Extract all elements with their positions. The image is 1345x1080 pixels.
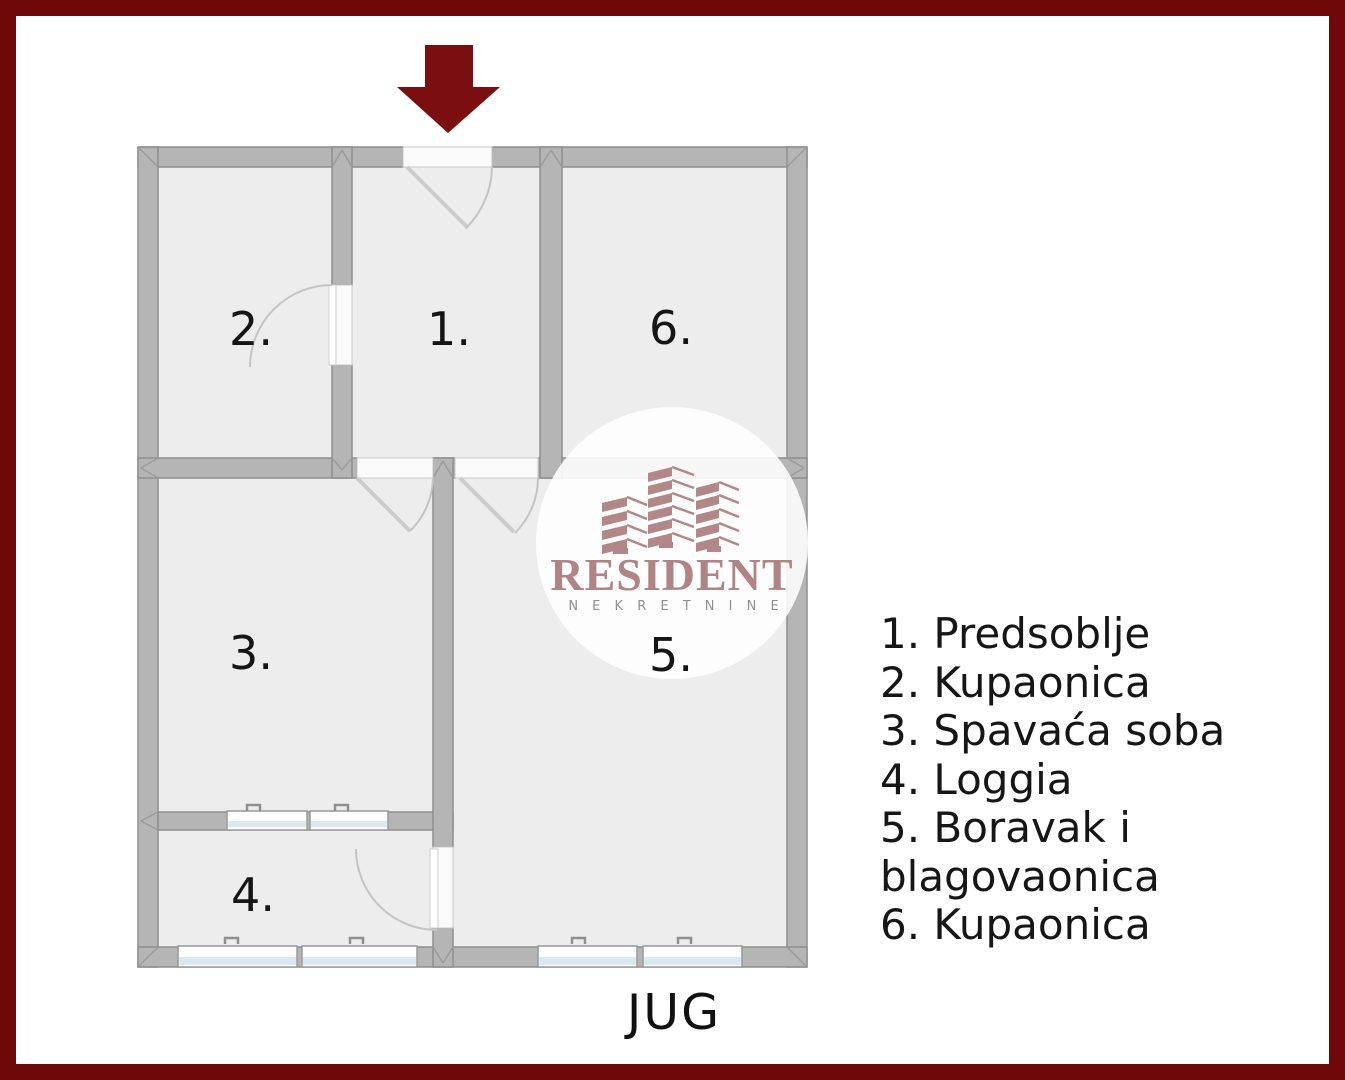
legend-item: 6. Kupaonica [880, 901, 1272, 950]
door-opening [357, 458, 433, 478]
window-glass [179, 957, 296, 965]
wall [433, 928, 453, 967]
window [227, 811, 307, 830]
room-label-2: 2. [229, 302, 273, 356]
wall [540, 147, 562, 478]
legend-item: 2. Kupaonica [880, 659, 1272, 708]
window-glass [644, 957, 741, 965]
wall [138, 458, 357, 478]
legend-item: 3. Spavaća soba [880, 707, 1272, 756]
room-label-5: 5. [649, 628, 693, 682]
room-legend: 1. Predsoblje 2. Kupaonica 3. Spavaća so… [880, 610, 1272, 950]
watermark-brand-text: RESIDENT [550, 549, 793, 600]
room-label-3: 3. [229, 626, 273, 680]
window [310, 811, 388, 830]
wall [332, 147, 352, 285]
window-glass [228, 821, 306, 827]
entrance-arrow-icon [397, 45, 500, 133]
window-glass [539, 957, 636, 965]
compass-label: JUG [627, 984, 721, 1041]
legend-item: 5. Boravak i blagovaonica [880, 804, 1272, 901]
legend-item: 4. Loggia [880, 756, 1272, 805]
wall [138, 147, 158, 967]
room-label-6: 6. [649, 301, 693, 355]
watermark-tagline-text: N E K R E T N I N E [568, 599, 783, 614]
door-leaf [430, 849, 438, 928]
wall [138, 147, 403, 167]
wall [433, 458, 453, 847]
window-glass [303, 957, 416, 965]
legend-item: 1. Predsoblje [880, 610, 1272, 659]
door-leaf [329, 285, 336, 365]
door-opening [455, 458, 538, 478]
room-label-1: 1. [427, 302, 471, 356]
floorplan-page: RESIDENT N E K R E T N I N E 1. 2. 3. 4.… [0, 0, 1345, 1080]
window-glass [311, 821, 387, 827]
entrance-door-opening [403, 147, 492, 167]
room-label-4: 4. [231, 868, 275, 922]
